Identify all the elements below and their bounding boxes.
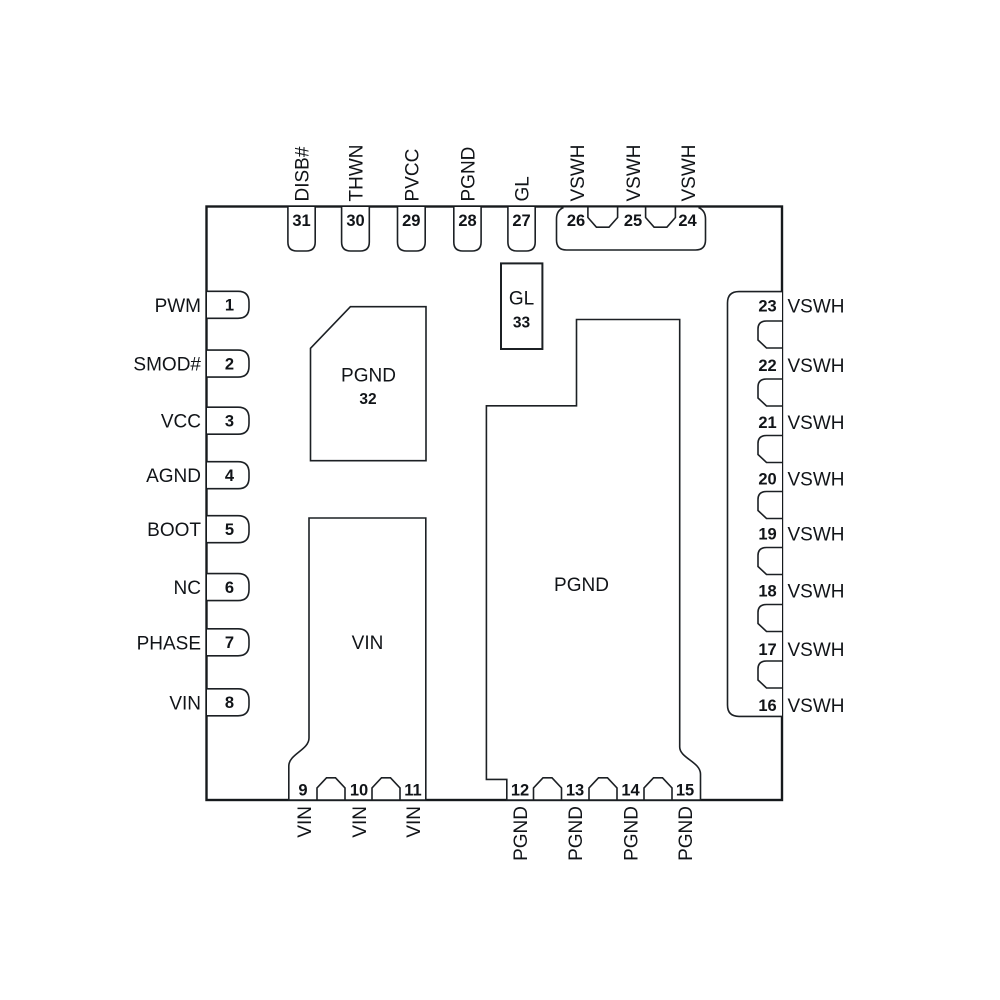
svg-text:VIN: VIN — [350, 806, 371, 838]
svg-text:2: 2 — [225, 355, 234, 373]
svg-text:PGND: PGND — [341, 366, 396, 387]
svg-text:PGND: PGND — [676, 806, 697, 861]
svg-text:26: 26 — [567, 212, 585, 230]
svg-text:VSWH: VSWH — [788, 525, 845, 546]
svg-text:32: 32 — [359, 391, 376, 408]
svg-text:24: 24 — [678, 212, 697, 230]
svg-text:PGND: PGND — [622, 806, 643, 861]
svg-text:29: 29 — [402, 212, 420, 230]
svg-text:VCC: VCC — [161, 412, 201, 433]
svg-text:VSWH: VSWH — [568, 145, 589, 202]
svg-text:11: 11 — [404, 782, 421, 800]
svg-text:VSWH: VSWH — [679, 145, 700, 202]
svg-text:28: 28 — [458, 212, 476, 230]
svg-text:12: 12 — [511, 782, 529, 800]
svg-text:25: 25 — [624, 212, 642, 230]
svg-text:22: 22 — [758, 357, 776, 375]
svg-text:3: 3 — [225, 412, 234, 430]
svg-text:VIN: VIN — [169, 693, 201, 714]
svg-text:8: 8 — [225, 694, 234, 712]
svg-text:PGND: PGND — [554, 575, 609, 596]
svg-text:VSWH: VSWH — [788, 296, 845, 317]
svg-text:VSWH: VSWH — [788, 413, 845, 434]
svg-text:4: 4 — [225, 467, 235, 485]
svg-text:BOOT: BOOT — [147, 520, 201, 541]
svg-text:16: 16 — [758, 697, 776, 715]
svg-text:10: 10 — [350, 782, 368, 800]
svg-text:13: 13 — [566, 782, 584, 800]
svg-text:VSWH: VSWH — [788, 640, 845, 661]
svg-text:SMOD#: SMOD# — [133, 355, 201, 376]
svg-text:PGND: PGND — [566, 806, 587, 861]
svg-text:17: 17 — [758, 641, 776, 659]
svg-text:5: 5 — [225, 521, 234, 539]
svg-text:21: 21 — [758, 414, 776, 432]
svg-text:1: 1 — [225, 297, 234, 315]
svg-text:GL: GL — [513, 176, 534, 201]
svg-text:VSWH: VSWH — [788, 582, 845, 603]
svg-text:NC: NC — [174, 578, 201, 599]
svg-text:14: 14 — [621, 782, 640, 800]
svg-text:PVCC: PVCC — [402, 149, 423, 202]
svg-text:VIN: VIN — [404, 806, 425, 838]
svg-text:15: 15 — [676, 782, 694, 800]
svg-text:PHASE: PHASE — [137, 633, 201, 654]
svg-text:20: 20 — [758, 471, 776, 489]
svg-text:GL: GL — [509, 288, 534, 309]
svg-text:19: 19 — [758, 526, 776, 544]
svg-text:PWM: PWM — [155, 296, 201, 317]
svg-text:7: 7 — [225, 634, 234, 652]
svg-text:THWN: THWN — [347, 145, 368, 202]
svg-text:PGND: PGND — [459, 147, 480, 202]
svg-text:18: 18 — [758, 583, 776, 601]
svg-text:AGND: AGND — [146, 466, 201, 487]
svg-text:30: 30 — [346, 212, 364, 230]
svg-text:PGND: PGND — [511, 806, 532, 861]
svg-text:VSWH: VSWH — [624, 145, 645, 202]
svg-text:23: 23 — [758, 298, 776, 316]
svg-text:31: 31 — [292, 212, 310, 230]
svg-text:27: 27 — [512, 212, 530, 230]
svg-text:VSWH: VSWH — [788, 696, 845, 717]
svg-text:VIN: VIN — [295, 806, 316, 838]
svg-text:9: 9 — [298, 782, 307, 800]
svg-text:33: 33 — [513, 314, 531, 331]
svg-text:6: 6 — [225, 579, 234, 597]
svg-text:VSWH: VSWH — [788, 356, 845, 377]
svg-text:VSWH: VSWH — [788, 470, 845, 491]
svg-text:DISB#: DISB# — [293, 146, 314, 201]
svg-text:VIN: VIN — [352, 633, 384, 654]
